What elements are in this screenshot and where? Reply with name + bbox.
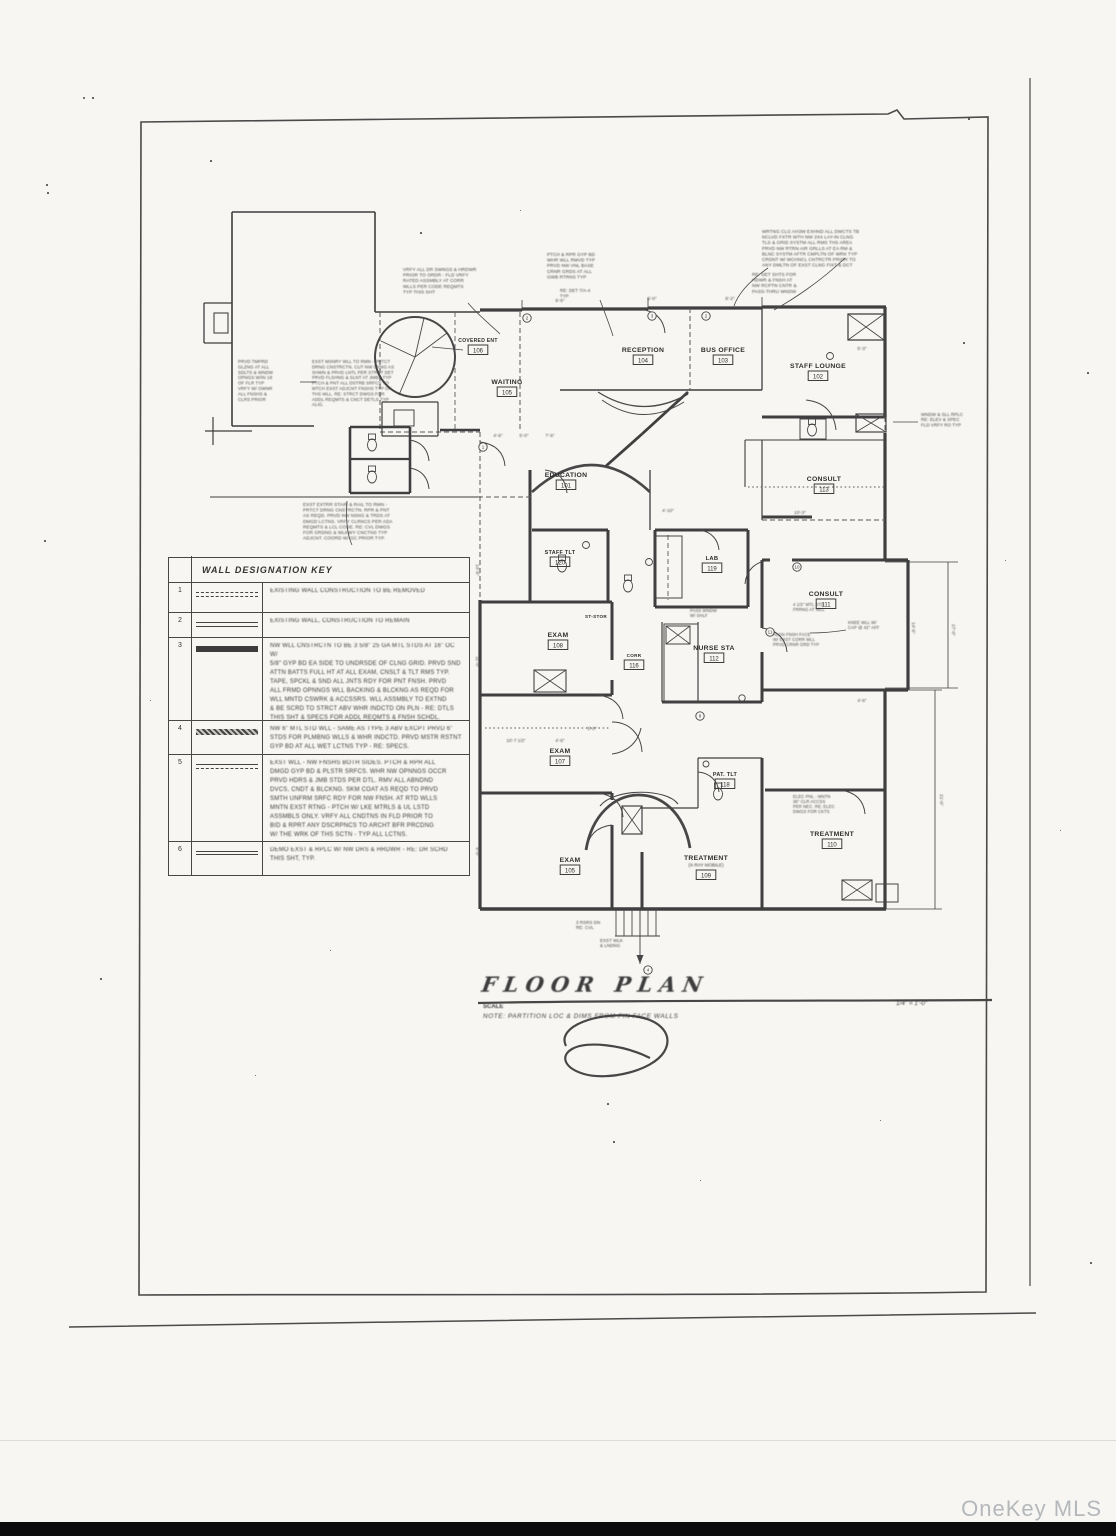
sheet-subtitle-note: NOTE: PARTITION LOC & DIMS FROM FIN FACE… [483, 1013, 678, 1020]
dimension-text: 5'-3" [857, 346, 867, 351]
plan-line [612, 728, 641, 754]
room-label: BUS OFFICE [701, 347, 745, 354]
room-label: WAITING [491, 379, 522, 386]
stair-arrow-icon [637, 955, 644, 964]
annotation-note: ALGN FNSH FACEW/ EXST CORR WLLPRVD CRNR … [773, 632, 819, 647]
plan-line [600, 300, 613, 336]
scanned-floor-plan-page: 2321101148RECEPTION104BUS OFFICE103STAFF… [0, 0, 1116, 1536]
key-row-number: 1 [169, 583, 192, 612]
room-label: CORR [627, 653, 642, 658]
annotation-note: PASS WNDWW/ SHLF [690, 608, 717, 618]
room-label: TREATMENT [810, 831, 855, 838]
dimension-text: 27'-0" [951, 624, 956, 636]
scan-speck [255, 1075, 256, 1076]
scan-speck [92, 97, 94, 99]
annotation-note: VRFY ALL DR SWNGS & HRDWRPRIOR TO ORDR -… [403, 267, 477, 294]
scan-speck [880, 1120, 881, 1121]
plan-line [586, 795, 690, 850]
key-row-description: EXST WLL - NW FNSHS BOTH SIDES. PTCH & R… [263, 755, 469, 841]
room-number: 118 [720, 782, 730, 788]
room-number: 107 [555, 759, 566, 765]
plan-line [468, 303, 500, 334]
scan-speck [963, 342, 965, 344]
room-number: 106 [473, 348, 484, 354]
annotation-note: WRTNG CLG AH3W EXHND ALL DWCTS TBNCLVD F… [762, 229, 859, 268]
scan-speck [1005, 560, 1006, 561]
room-number: 103 [718, 358, 729, 364]
plan-line [410, 468, 429, 489]
annotation-note: EXST EXTRR STAIR & RAIL TO RMN -PRTCT DR… [303, 502, 393, 541]
dimension-text: 5'-0" [647, 296, 657, 301]
annotation-note: RE: DET SHTS FORHDWR & FNSH ATNW RCPTN C… [752, 272, 797, 294]
key-table-corner-cell [169, 556, 192, 584]
scan-speck [150, 700, 151, 701]
key-row-description: NW 6" MTL STD WLL - SAME AS TYPE 3 ABV E… [263, 721, 469, 754]
key-table-row: 5EXST WLL - NW FNSHS BOTH SIDES. PTCH & … [169, 755, 469, 842]
annotation-note: PRVD TMPRDGLZNG AT ALLSDLTS & WNDWOPNGS … [238, 359, 274, 402]
room-label: LAB [706, 556, 719, 562]
room-label: CONSULT [809, 591, 844, 598]
wall-type-symbol [192, 755, 263, 841]
dimension-text: 21'-0" [939, 794, 944, 806]
room-label: EDUCATION [545, 472, 588, 479]
room-label: RECEPTION [622, 347, 664, 354]
room-label: EXAM [560, 857, 581, 864]
scan-speck [700, 1180, 701, 1181]
room-number: 113 [819, 487, 829, 493]
casework [394, 410, 414, 426]
key-row-description: EXISTING WALL CONSTRUCTION TO BE REMOVED [263, 583, 469, 612]
plan-line [700, 530, 719, 550]
scale-label: SCALE [483, 1004, 503, 1010]
toilet-fixture [368, 439, 377, 451]
key-row-description: EXISTING WALL, CONSTRUCTION TO REMAIN [263, 613, 469, 637]
plan-line [840, 790, 865, 814]
scan-black-bar [0, 1522, 1116, 1536]
scan-speck [1090, 1262, 1092, 1264]
dimension-text: 5'-0" [519, 433, 529, 438]
dimension-text: 10'-3" [794, 510, 806, 515]
key-row-number: 3 [169, 638, 192, 720]
key-table-title: WALL DESIGNATION KEY [192, 565, 469, 575]
dimension-text: 9'-0" [475, 847, 480, 857]
scale-value: 1/4" = 1'-0" [896, 1000, 927, 1007]
dimension-text: 4'-10" [662, 508, 674, 513]
scan-speck [520, 210, 521, 211]
annotation-note: 4 1/2" MTL STDFRRNG AT WLL [793, 602, 825, 612]
key-table-row: 1EXISTING WALL CONSTRUCTION TO BE REMOVE… [169, 583, 469, 613]
scan-speck [83, 97, 85, 99]
plan-line [432, 347, 463, 350]
room-number: 105 [565, 868, 576, 874]
annotation-note: EXST MSNRY WLL TO RMN - PRTCTDRNG CNSTRC… [312, 359, 394, 407]
scan-speck [1087, 372, 1089, 374]
wall-type-symbol [192, 613, 263, 637]
toilet-fixture [808, 424, 817, 436]
key-table-row: 2EXISTING WALL, CONSTRUCTION TO REMAIN [169, 613, 469, 638]
sink-fixture [703, 761, 709, 767]
paper-skew-line [69, 1313, 1036, 1327]
wall-type-symbol [192, 638, 263, 720]
scan-speck [420, 232, 422, 234]
annotation-note: KNEE WLL W/CAP @ 42" AFF [848, 620, 880, 630]
room-label: TREATMENT [684, 855, 729, 862]
scan-speck [100, 978, 102, 980]
casework [664, 624, 698, 702]
dimension-text: 9'-6" [555, 298, 565, 303]
scan-speck [47, 192, 49, 194]
casework [876, 884, 898, 902]
sheet-title: FLOOR PLAN [480, 972, 711, 997]
keynote-number: 10 [794, 565, 800, 570]
room-label: PAT. TLT [713, 772, 738, 778]
scan-speck [1060, 830, 1061, 831]
room-number: 120 [555, 560, 566, 566]
scan-fold-line [0, 1440, 1116, 1441]
scan-speck [210, 160, 212, 162]
wall-type-symbol [192, 721, 263, 754]
wall-segment [606, 434, 642, 466]
sink-fixture [646, 559, 653, 566]
room-number: 101 [561, 483, 572, 489]
room-label: EXAM [548, 632, 569, 639]
wall-type-symbol [192, 583, 263, 612]
dimension-text: 4'-6" [555, 738, 565, 743]
annotation-note: PTCH & RPR GYP BDWHR WLL RMVD TYPPRVD NW… [547, 252, 596, 279]
annotation-note: EXST WLK& LNDNG [600, 938, 623, 948]
room-number: 116 [629, 663, 639, 669]
plan-line [810, 630, 846, 633]
toilet-fixture [368, 471, 377, 483]
room-label: STAFF TLT [545, 550, 576, 556]
room-number: 109 [701, 873, 712, 879]
scan-speck [46, 184, 48, 186]
dimension-text: 8'-2" [725, 296, 735, 301]
plan-line [399, 357, 415, 395]
room-label: NURSE STA [693, 645, 734, 652]
room-number: 104 [638, 358, 649, 364]
annotation-note: RE: DET 7/A-4TYP [560, 288, 591, 298]
annotation-note: 3 RSRS DNRE: CVL [576, 920, 600, 930]
room-number: 102 [813, 374, 824, 380]
key-row-description: NW WLL CNSTRCTN TO BE 3 5/8" 25 GA MTL S… [263, 638, 469, 720]
key-table-row: 4NW 6" MTL STD WLL - SAME AS TYPE 3 ABV … [169, 721, 469, 755]
room-label: CONSULT [807, 476, 842, 483]
key-row-description: DEMO EXST & RPLC W/ NW DRS & HRDWR - RE:… [263, 842, 469, 875]
scan-speck [330, 950, 331, 951]
room-label: STAFF LOUNGE [790, 363, 846, 370]
key-row-number: 4 [169, 721, 192, 754]
key-row-number: 6 [169, 842, 192, 875]
sink-fixture [827, 353, 834, 360]
key-row-number: 5 [169, 755, 192, 841]
plan-line [598, 695, 623, 719]
room-number: 112 [709, 656, 719, 662]
room-number: 119 [707, 566, 717, 572]
toilet-fixture [624, 580, 633, 592]
room-label: EXAM [550, 748, 571, 755]
dimension-text: 7'-6" [545, 433, 555, 438]
plan-line [806, 400, 836, 430]
sink-fixture [739, 695, 745, 701]
dimension-text: 4'-6" [857, 698, 867, 703]
key-row-number: 2 [169, 613, 192, 637]
dimension-text: 11'-0" [475, 656, 480, 668]
dimension-text: 4'-6" [493, 433, 503, 438]
annotation-note: ELEC PNL - MNTN36" CLR ACCSSPER NEC. RE:… [793, 794, 835, 814]
scan-speck [968, 118, 970, 120]
scan-speck [44, 540, 46, 542]
plan-line [564, 1015, 667, 1076]
dimension-text: 5'-0" [587, 726, 597, 731]
casework [656, 536, 682, 598]
key-table-header: WALL DESIGNATION KEY [169, 558, 469, 583]
room-label: COVERED ENT [458, 338, 497, 344]
room-number: 108 [553, 643, 564, 649]
key-table-row: 6DEMO EXST & RPLC W/ NW DRS & HRDWR - RE… [169, 842, 469, 875]
room-number: 105 [502, 390, 513, 396]
scan-speck [613, 1141, 615, 1143]
key-table-row: 3NW WLL CNSTRCTN TO BE 3 5/8" 25 GA MTL … [169, 638, 469, 721]
onekey-mls-watermark: OneKey MLS [961, 1496, 1102, 1522]
dimension-text: 14'-6" [475, 564, 480, 576]
casework [214, 313, 228, 333]
room-label: ST-STOR [585, 614, 607, 619]
annotation-note: WNDW & SLL RPLCRE: ELEV & SPECFLD VRFY R… [921, 412, 963, 427]
dimension-text: 14'-6" [911, 622, 916, 634]
dimension-text: 10'-7 1/2" [506, 738, 526, 743]
room-number: 110 [827, 842, 837, 848]
wall-type-symbol [192, 842, 263, 875]
plan-line [410, 440, 429, 461]
scan-speck [607, 1103, 609, 1105]
room-label-sub: (X-RAY MOBILE) [688, 863, 724, 868]
toilet-fixture [714, 788, 723, 800]
wall-designation-key-table: WALL DESIGNATION KEY 1EXISTING WALL CONS… [168, 557, 470, 876]
sink-fixture [583, 542, 590, 549]
plan-line [381, 341, 415, 357]
